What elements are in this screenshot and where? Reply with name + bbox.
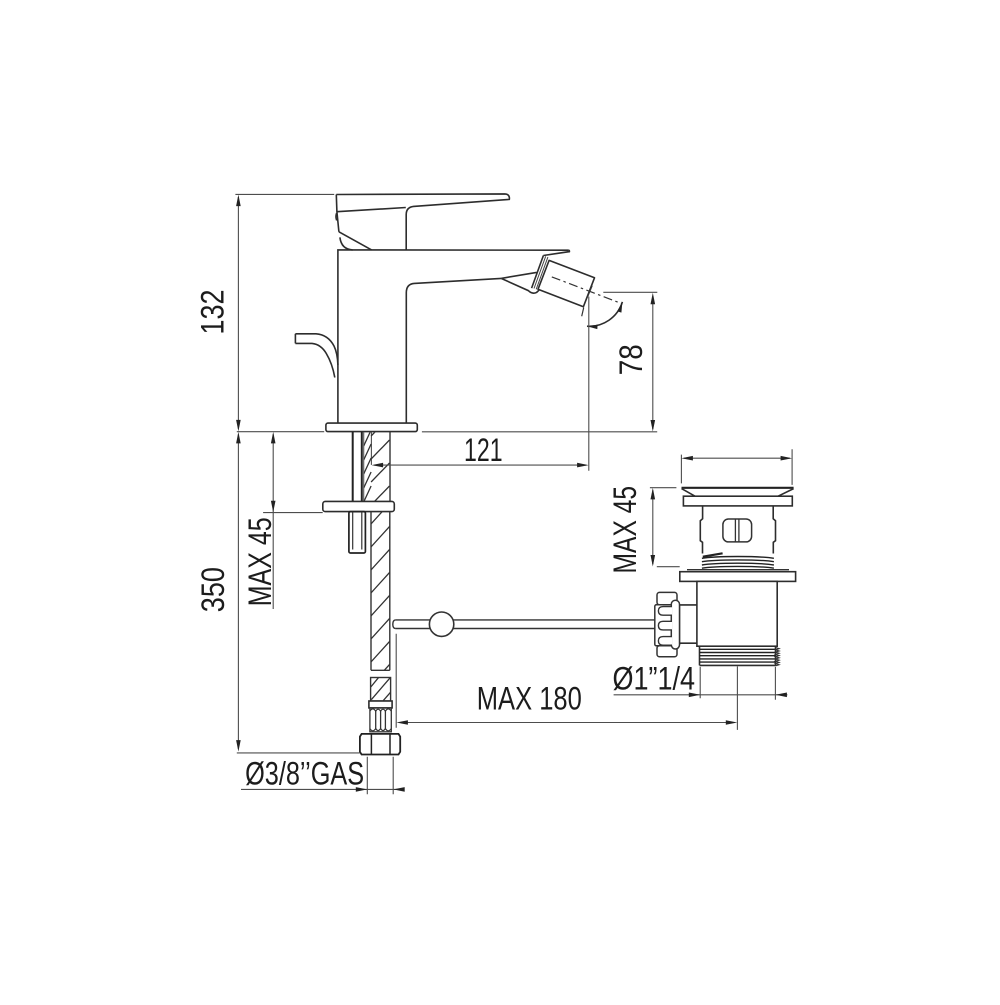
svg-text:Ø3/8’’GAS: Ø3/8’’GAS [245,755,364,791]
svg-text:350: 350 [195,567,231,612]
svg-text:132: 132 [195,290,231,335]
svg-text:MAX 45: MAX 45 [242,517,278,606]
svg-text:Ø1”1/4: Ø1”1/4 [613,660,696,696]
svg-text:78: 78 [613,344,649,375]
svg-text:MAX 180: MAX 180 [477,680,582,716]
svg-text:MAX 45: MAX 45 [607,486,643,574]
svg-text:121: 121 [464,432,503,468]
